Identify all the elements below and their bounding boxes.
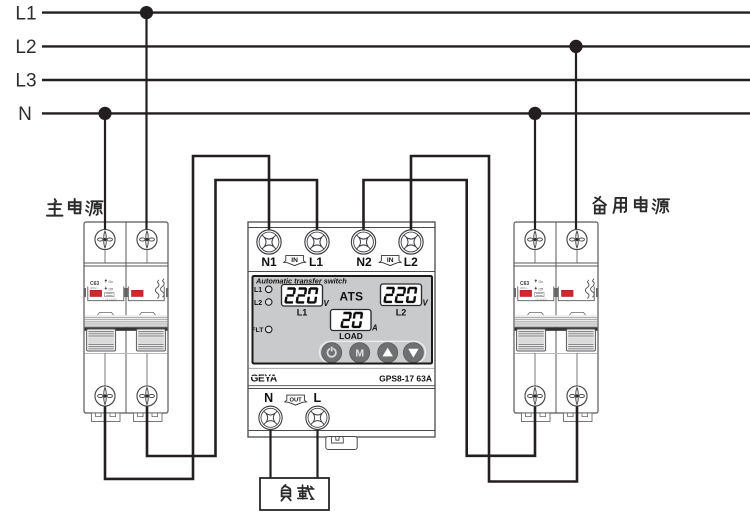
svg-text:L1: L1 <box>297 307 308 317</box>
svg-text:N: N <box>264 391 273 405</box>
svg-text:L3: L3 <box>15 71 36 92</box>
svg-text:L1: L1 <box>254 287 262 294</box>
svg-text:LOAD: LOAD <box>339 331 363 341</box>
svg-text:GEYA: GEYA <box>251 373 278 384</box>
svg-text:N2: N2 <box>356 255 372 269</box>
svg-text:N1: N1 <box>261 255 277 269</box>
svg-text:L1: L1 <box>15 3 36 24</box>
svg-text:N: N <box>18 104 32 125</box>
svg-text:IN: IN <box>387 257 394 264</box>
svg-text:L2: L2 <box>254 300 262 307</box>
svg-text:V: V <box>324 299 330 308</box>
svg-text:GPS8-17 63A: GPS8-17 63A <box>379 373 432 383</box>
svg-text:L1: L1 <box>309 255 323 269</box>
svg-text:L: L <box>313 391 321 405</box>
svg-text:L2: L2 <box>396 307 407 317</box>
svg-text:A: A <box>371 324 378 333</box>
svg-text:L2: L2 <box>404 255 418 269</box>
svg-text:M: M <box>355 347 364 359</box>
svg-text:V: V <box>423 299 429 308</box>
svg-text:OUT: OUT <box>289 398 302 404</box>
svg-text:L2: L2 <box>15 37 36 58</box>
svg-text:ATS: ATS <box>340 290 364 304</box>
svg-text:IN: IN <box>291 257 298 264</box>
